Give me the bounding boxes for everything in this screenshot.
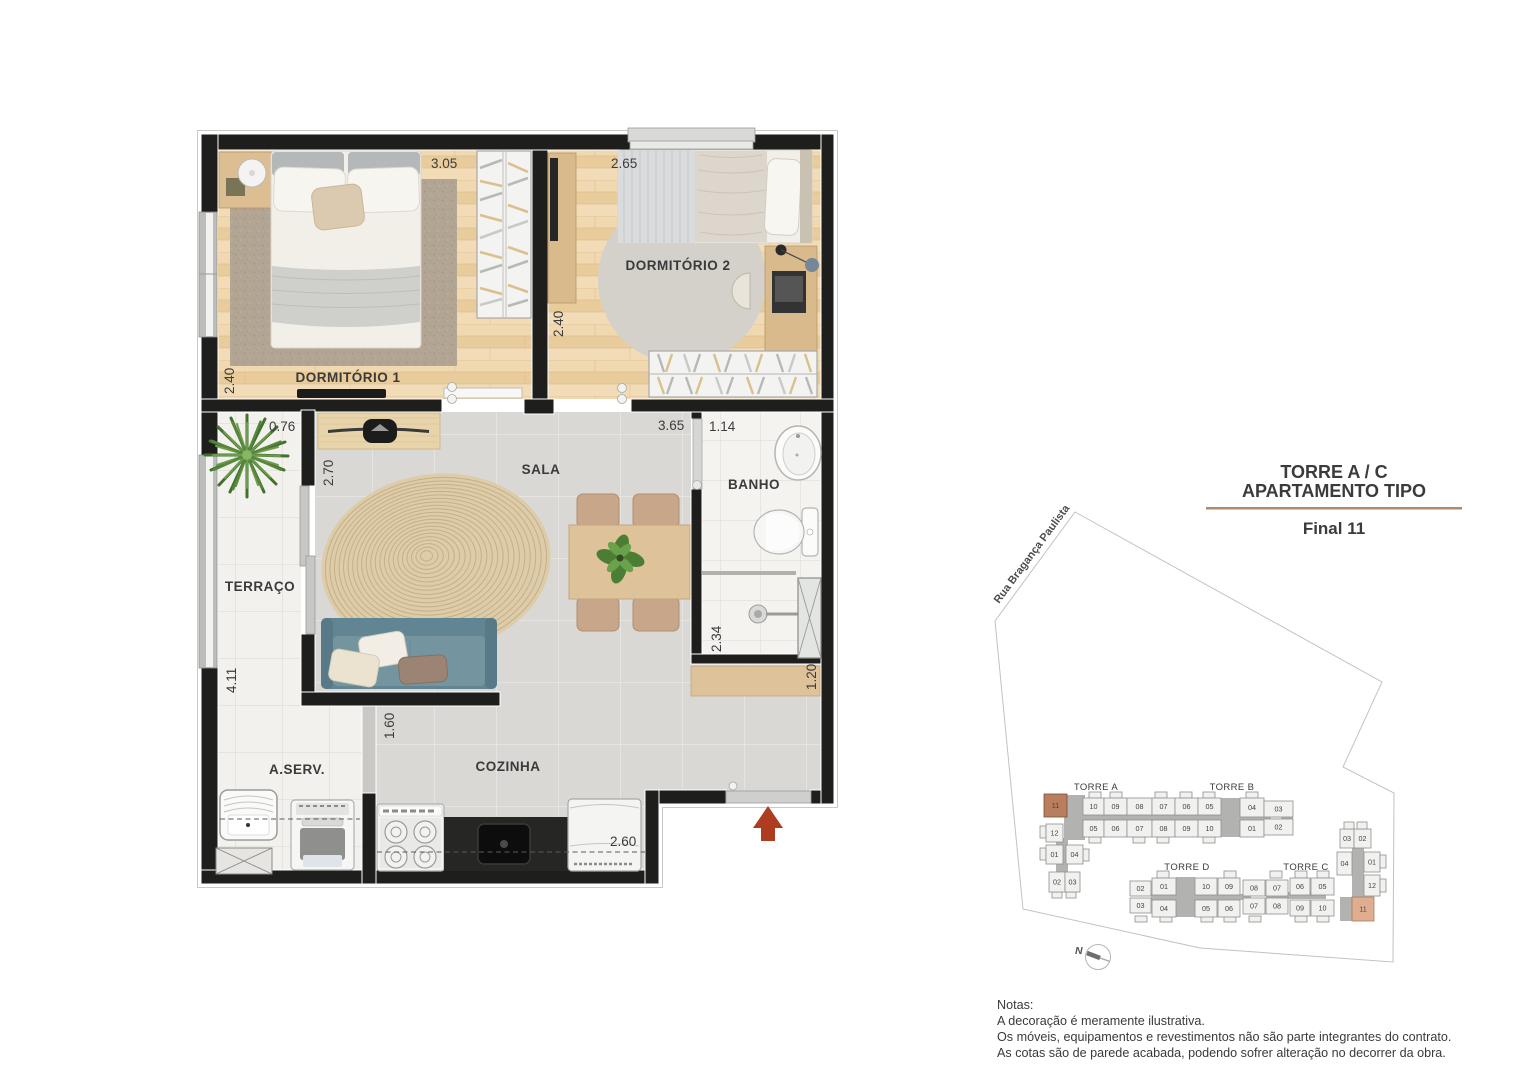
svg-text:1.20: 1.20 <box>804 664 819 690</box>
svg-text:N: N <box>1075 945 1083 957</box>
svg-text:08: 08 <box>1250 883 1258 892</box>
svg-text:08: 08 <box>1160 824 1168 833</box>
svg-text:02: 02 <box>1137 884 1145 893</box>
svg-text:Os móveis, equipamentos e reve: Os móveis, equipamentos e revestimentos … <box>997 1030 1451 1044</box>
svg-text:07: 07 <box>1250 901 1258 910</box>
svg-text:4.11: 4.11 <box>224 668 239 693</box>
svg-text:Final 11: Final 11 <box>1303 519 1365 538</box>
svg-text:09: 09 <box>1183 824 1191 833</box>
svg-text:04: 04 <box>1248 803 1256 812</box>
svg-text:10: 10 <box>1090 802 1098 811</box>
svg-text:2.60: 2.60 <box>610 834 636 849</box>
svg-text:3.05: 3.05 <box>431 156 457 171</box>
svg-text:2.70: 2.70 <box>321 460 336 486</box>
svg-text:1.14: 1.14 <box>709 419 736 434</box>
svg-text:06: 06 <box>1183 802 1191 811</box>
svg-text:A.SERV.: A.SERV. <box>269 762 325 777</box>
svg-text:TORRE D: TORRE D <box>1164 862 1209 873</box>
svg-text:2.65: 2.65 <box>611 156 637 171</box>
svg-text:06: 06 <box>1225 904 1233 913</box>
svg-text:TERRAÇO: TERRAÇO <box>225 579 295 594</box>
svg-text:02: 02 <box>1053 877 1061 886</box>
svg-text:05: 05 <box>1319 882 1327 891</box>
svg-text:03: 03 <box>1275 804 1283 813</box>
svg-text:2.40: 2.40 <box>222 368 237 394</box>
svg-text:03: 03 <box>1069 877 1077 886</box>
svg-text:07: 07 <box>1160 802 1168 811</box>
svg-text:10: 10 <box>1206 824 1214 833</box>
svg-text:As cotas são de parede acabada: As cotas são de parede acabada, podendo … <box>997 1046 1446 1060</box>
svg-text:12: 12 <box>1368 881 1376 890</box>
svg-text:05: 05 <box>1090 824 1098 833</box>
svg-text:05: 05 <box>1206 802 1214 811</box>
svg-text:DORMITÓRIO 1: DORMITÓRIO 1 <box>295 370 400 385</box>
svg-text:TORRE A / C: TORRE A / C <box>1280 462 1387 482</box>
svg-text:3.65: 3.65 <box>658 418 684 433</box>
svg-text:08: 08 <box>1273 901 1281 910</box>
svg-text:06: 06 <box>1296 882 1304 891</box>
svg-text:04: 04 <box>1071 850 1079 859</box>
svg-text:Notas:: Notas: <box>997 998 1033 1012</box>
svg-text:05: 05 <box>1202 904 1210 913</box>
svg-text:2.34: 2.34 <box>709 625 724 652</box>
svg-text:APARTAMENTO TIPO: APARTAMENTO TIPO <box>1242 481 1426 501</box>
svg-text:DORMITÓRIO 2: DORMITÓRIO 2 <box>625 258 730 273</box>
svg-text:11: 11 <box>1052 801 1059 810</box>
svg-text:04: 04 <box>1341 859 1349 868</box>
svg-text:09: 09 <box>1112 802 1120 811</box>
svg-text:02: 02 <box>1359 834 1367 843</box>
svg-text:BANHO: BANHO <box>728 477 780 492</box>
svg-text:10: 10 <box>1202 882 1210 891</box>
svg-text:10: 10 <box>1319 903 1327 912</box>
svg-text:09: 09 <box>1296 903 1304 912</box>
svg-text:08: 08 <box>1136 802 1144 811</box>
svg-text:07: 07 <box>1136 824 1144 833</box>
svg-text:06: 06 <box>1112 824 1120 833</box>
svg-text:03: 03 <box>1137 901 1145 910</box>
svg-text:03: 03 <box>1343 834 1351 843</box>
svg-text:2.40: 2.40 <box>551 311 566 337</box>
svg-text:0.76: 0.76 <box>269 419 295 434</box>
svg-text:TORRE A: TORRE A <box>1074 782 1119 793</box>
svg-text:01: 01 <box>1368 857 1376 866</box>
svg-text:A decoração é meramente ilustr: A decoração é meramente ilustrativa. <box>997 1014 1205 1028</box>
svg-text:SALA: SALA <box>522 462 561 477</box>
svg-text:TORRE B: TORRE B <box>1210 782 1255 793</box>
svg-text:01: 01 <box>1248 824 1256 833</box>
svg-text:01: 01 <box>1160 882 1168 891</box>
svg-text:02: 02 <box>1275 822 1283 831</box>
svg-text:TORRE C: TORRE C <box>1283 862 1328 873</box>
svg-text:1.60: 1.60 <box>382 713 397 739</box>
svg-text:09: 09 <box>1225 882 1233 891</box>
svg-text:04: 04 <box>1160 904 1168 913</box>
svg-text:11: 11 <box>1359 904 1366 913</box>
svg-text:12: 12 <box>1051 828 1059 837</box>
svg-text:COZINHA: COZINHA <box>476 759 541 774</box>
svg-text:07: 07 <box>1273 883 1281 892</box>
svg-text:01: 01 <box>1051 850 1059 859</box>
